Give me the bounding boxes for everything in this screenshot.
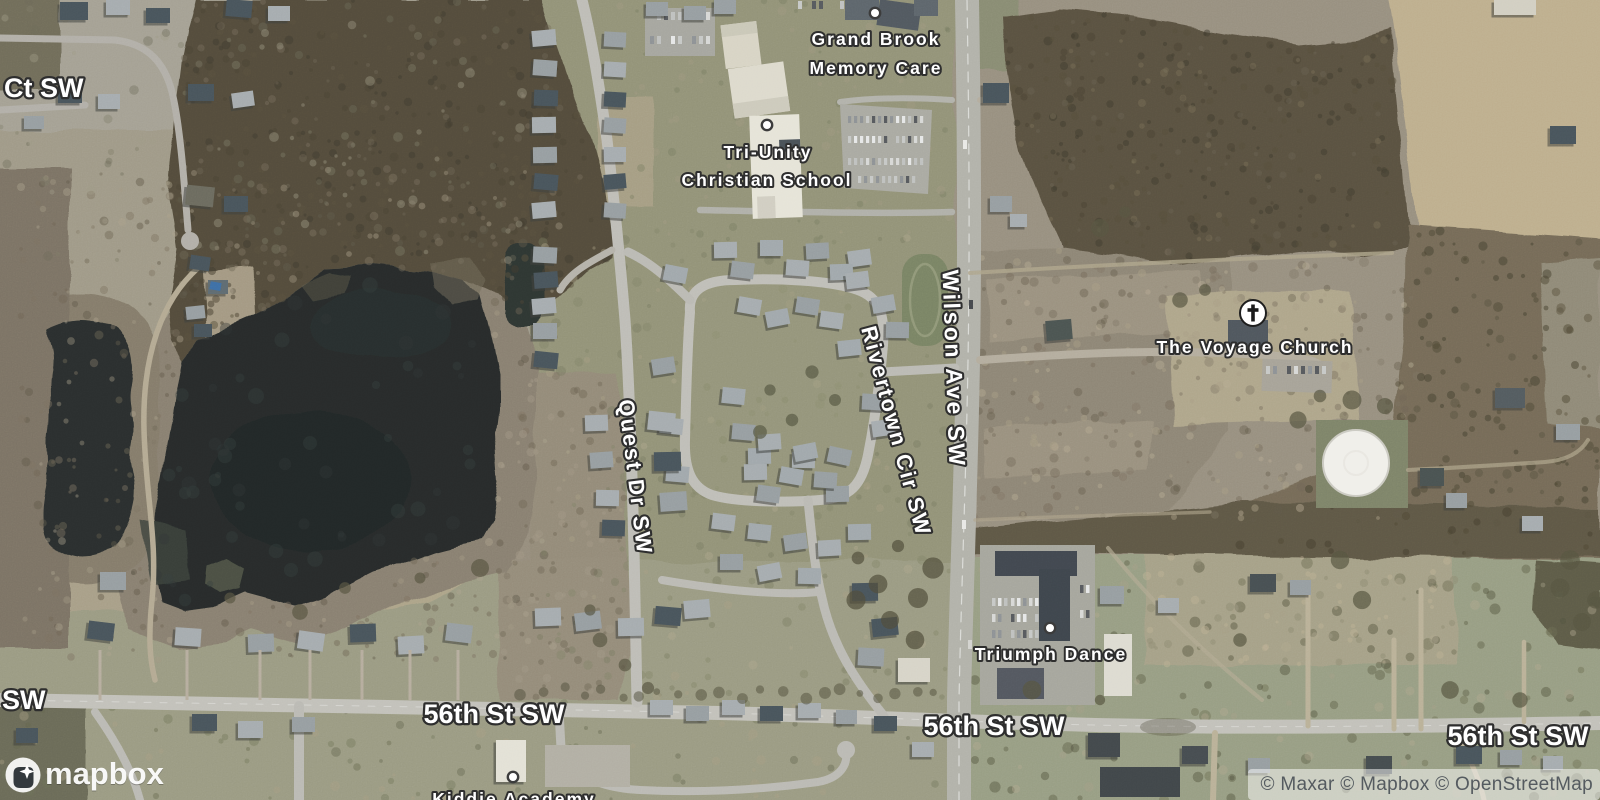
svg-text:Christian School: Christian School (681, 170, 852, 190)
svg-text:56th St SW: 56th St SW (1447, 721, 1589, 751)
svg-text:Triumph Dance: Triumph Dance (975, 644, 1127, 664)
svg-text:Ct SW: Ct SW (4, 73, 84, 103)
svg-text:56th St SW: 56th St SW (923, 711, 1065, 741)
svg-text:The Voyage Church: The Voyage Church (1156, 337, 1353, 357)
svg-text:Grand Brook: Grand Brook (812, 29, 941, 49)
svg-text:Kiddie Academy: Kiddie Academy (432, 789, 596, 800)
svg-text:© Maxar © Mapbox © OpenStreetM: © Maxar © Mapbox © OpenStreetMap (1260, 774, 1593, 795)
svg-text:Tri-Unity: Tri-Unity (724, 142, 813, 162)
svg-text:SW: SW (2, 685, 46, 715)
svg-text:Memory Care: Memory Care (810, 58, 943, 78)
svg-text:mapbox: mapbox (45, 756, 165, 791)
svg-text:56th St SW: 56th St SW (423, 699, 565, 729)
